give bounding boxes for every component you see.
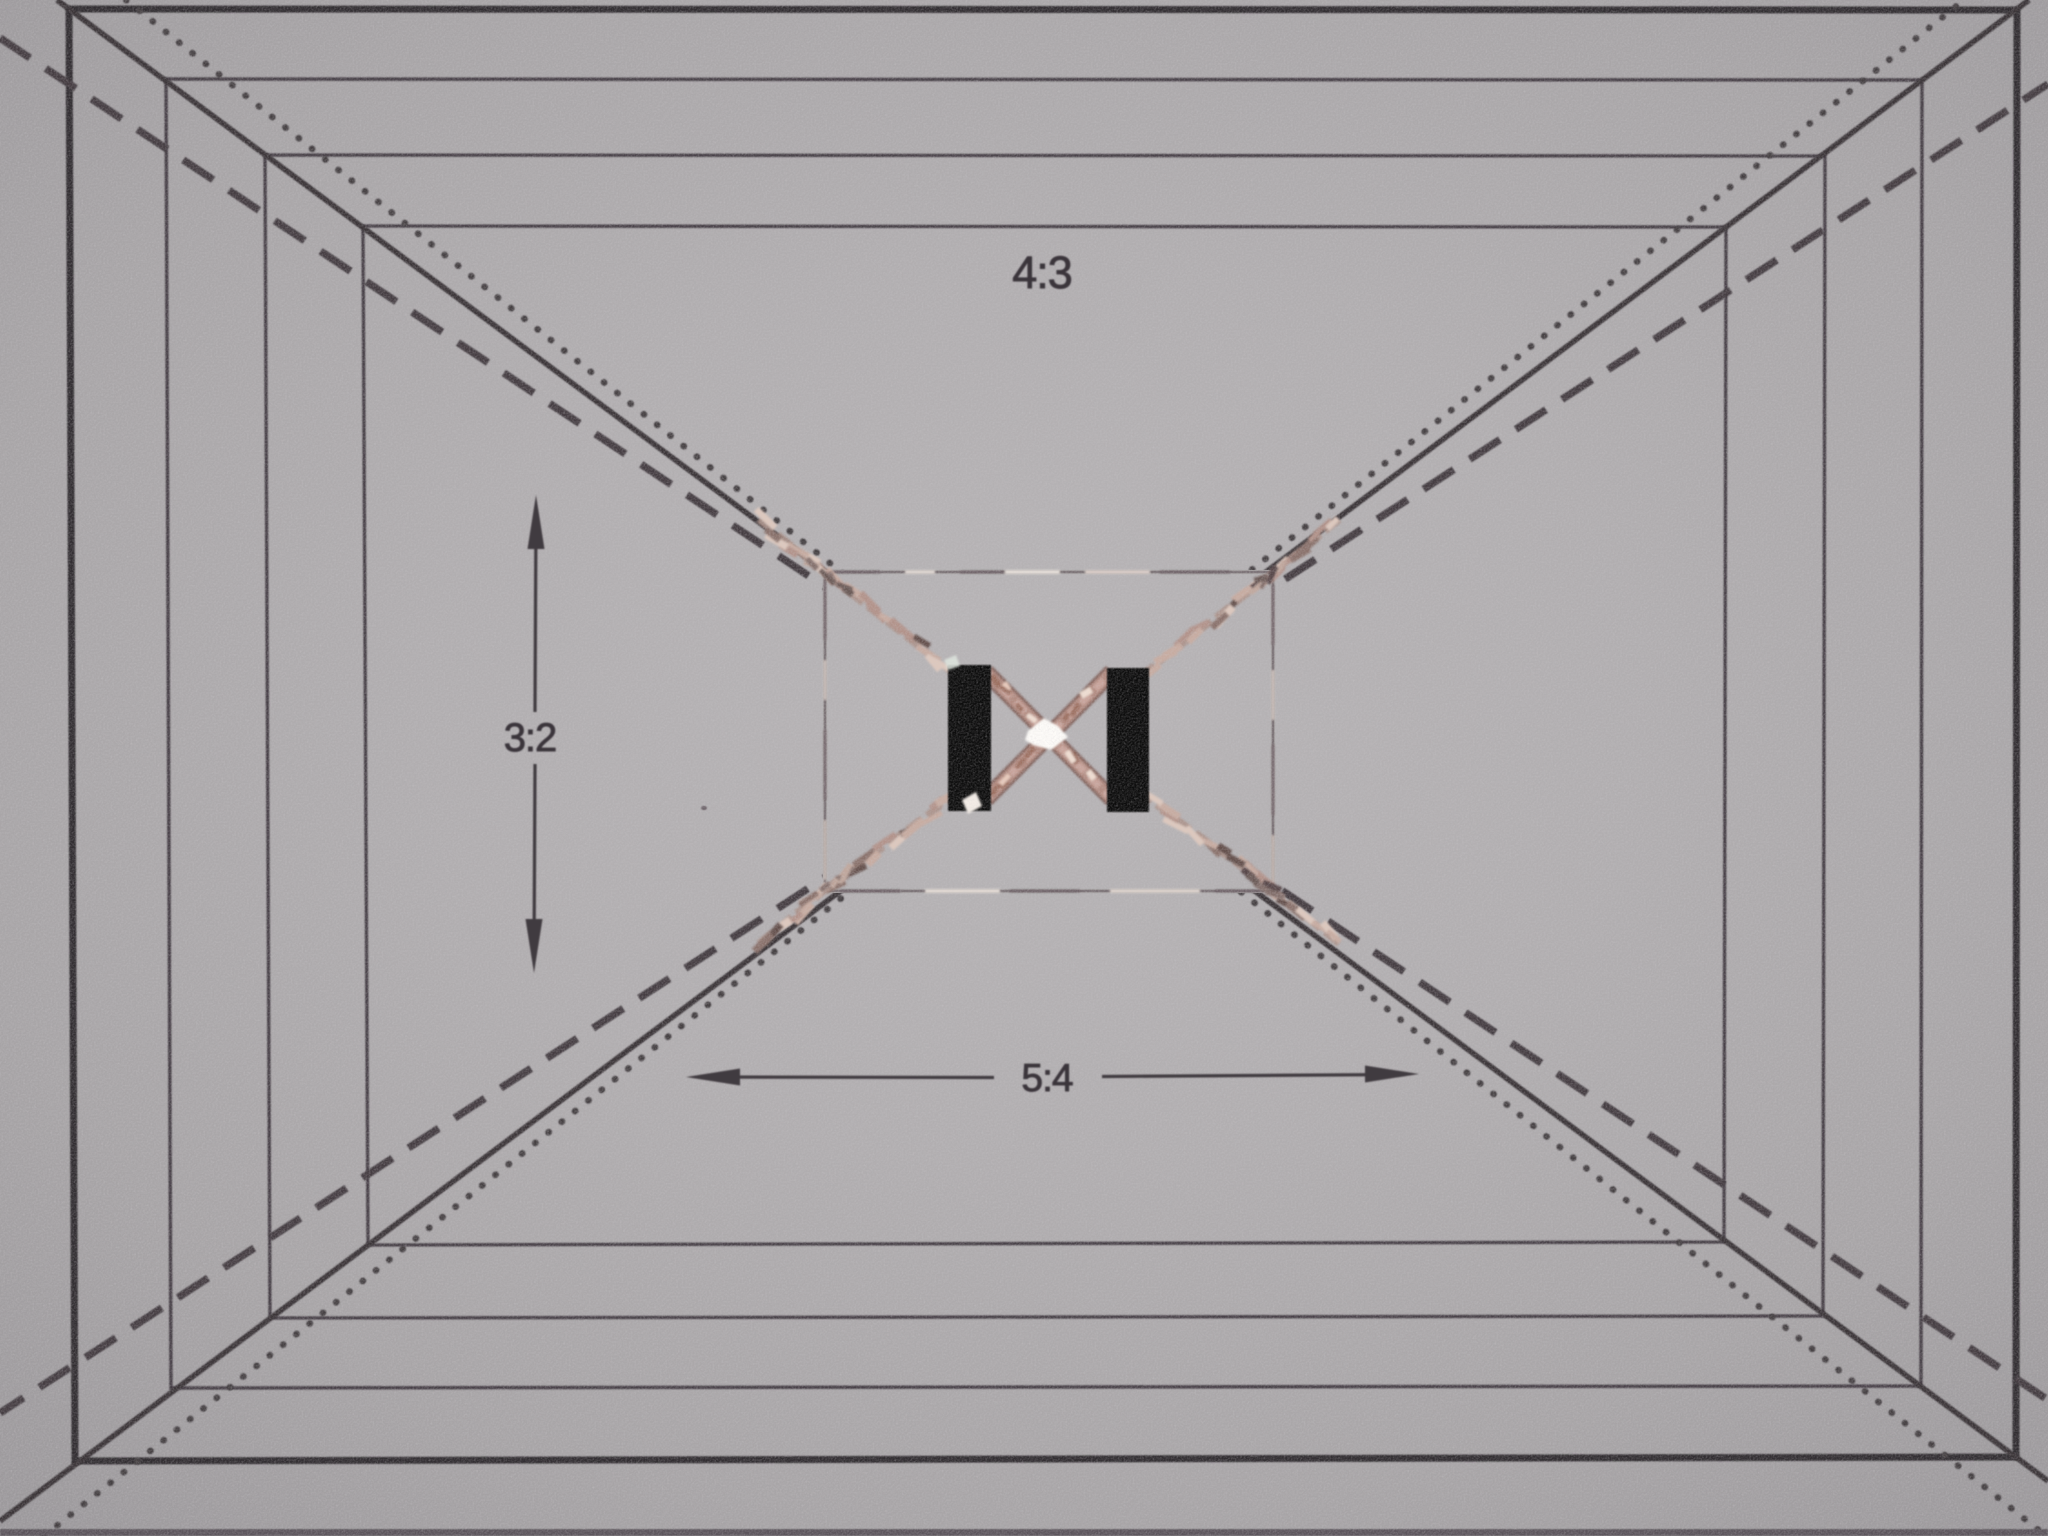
svg-text:3:2: 3:2 [504,716,557,760]
svg-text:5:4: 5:4 [1021,1057,1073,1100]
svg-text:4:3: 4:3 [1012,247,1072,298]
